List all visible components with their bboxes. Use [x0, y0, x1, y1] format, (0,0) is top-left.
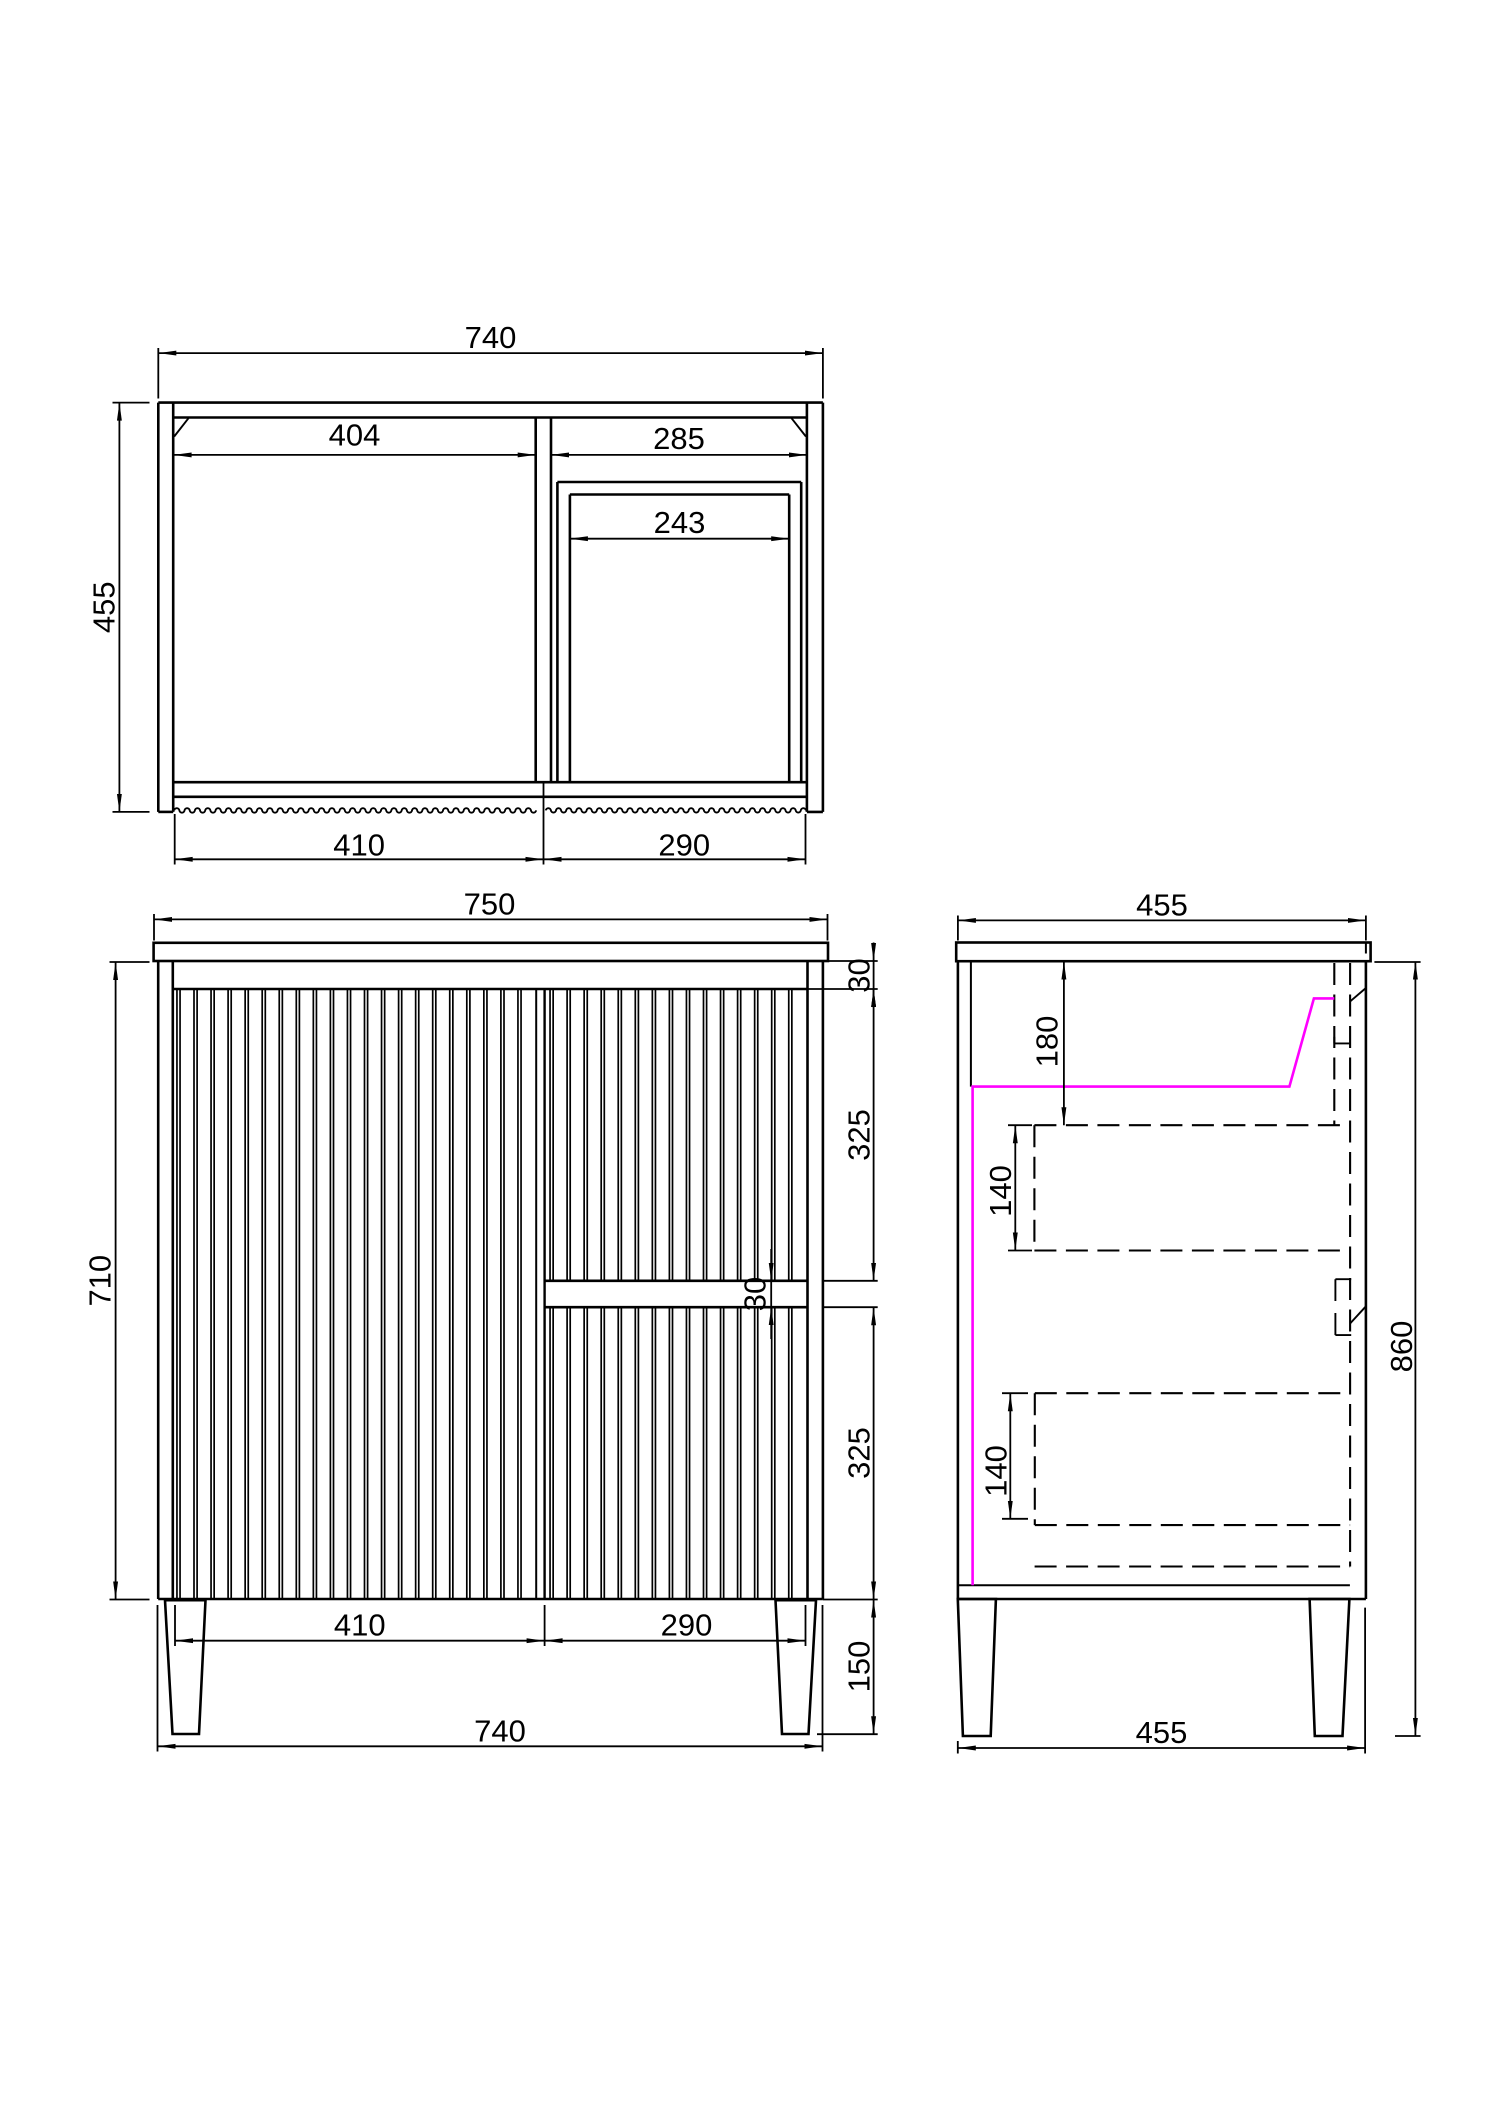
- svg-text:740: 740: [465, 320, 517, 355]
- svg-text:325: 325: [842, 1109, 877, 1161]
- svg-text:325: 325: [842, 1427, 877, 1479]
- svg-text:455: 455: [1136, 1715, 1188, 1750]
- svg-text:180: 180: [1030, 1016, 1065, 1068]
- svg-text:750: 750: [464, 886, 516, 921]
- svg-text:243: 243: [654, 505, 706, 540]
- svg-text:140: 140: [979, 1445, 1014, 1497]
- svg-text:410: 410: [333, 828, 385, 863]
- svg-text:455: 455: [1136, 887, 1188, 922]
- svg-text:740: 740: [474, 1713, 526, 1748]
- svg-text:404: 404: [329, 418, 381, 453]
- svg-text:150: 150: [842, 1641, 877, 1693]
- svg-text:860: 860: [1384, 1321, 1419, 1373]
- svg-text:410: 410: [334, 1608, 386, 1643]
- svg-text:290: 290: [658, 828, 710, 863]
- svg-text:290: 290: [661, 1608, 713, 1643]
- svg-text:30: 30: [738, 1277, 773, 1311]
- svg-text:455: 455: [87, 581, 122, 633]
- svg-text:30: 30: [842, 958, 877, 992]
- svg-text:710: 710: [83, 1255, 118, 1307]
- svg-text:140: 140: [983, 1165, 1018, 1217]
- svg-text:285: 285: [653, 421, 705, 456]
